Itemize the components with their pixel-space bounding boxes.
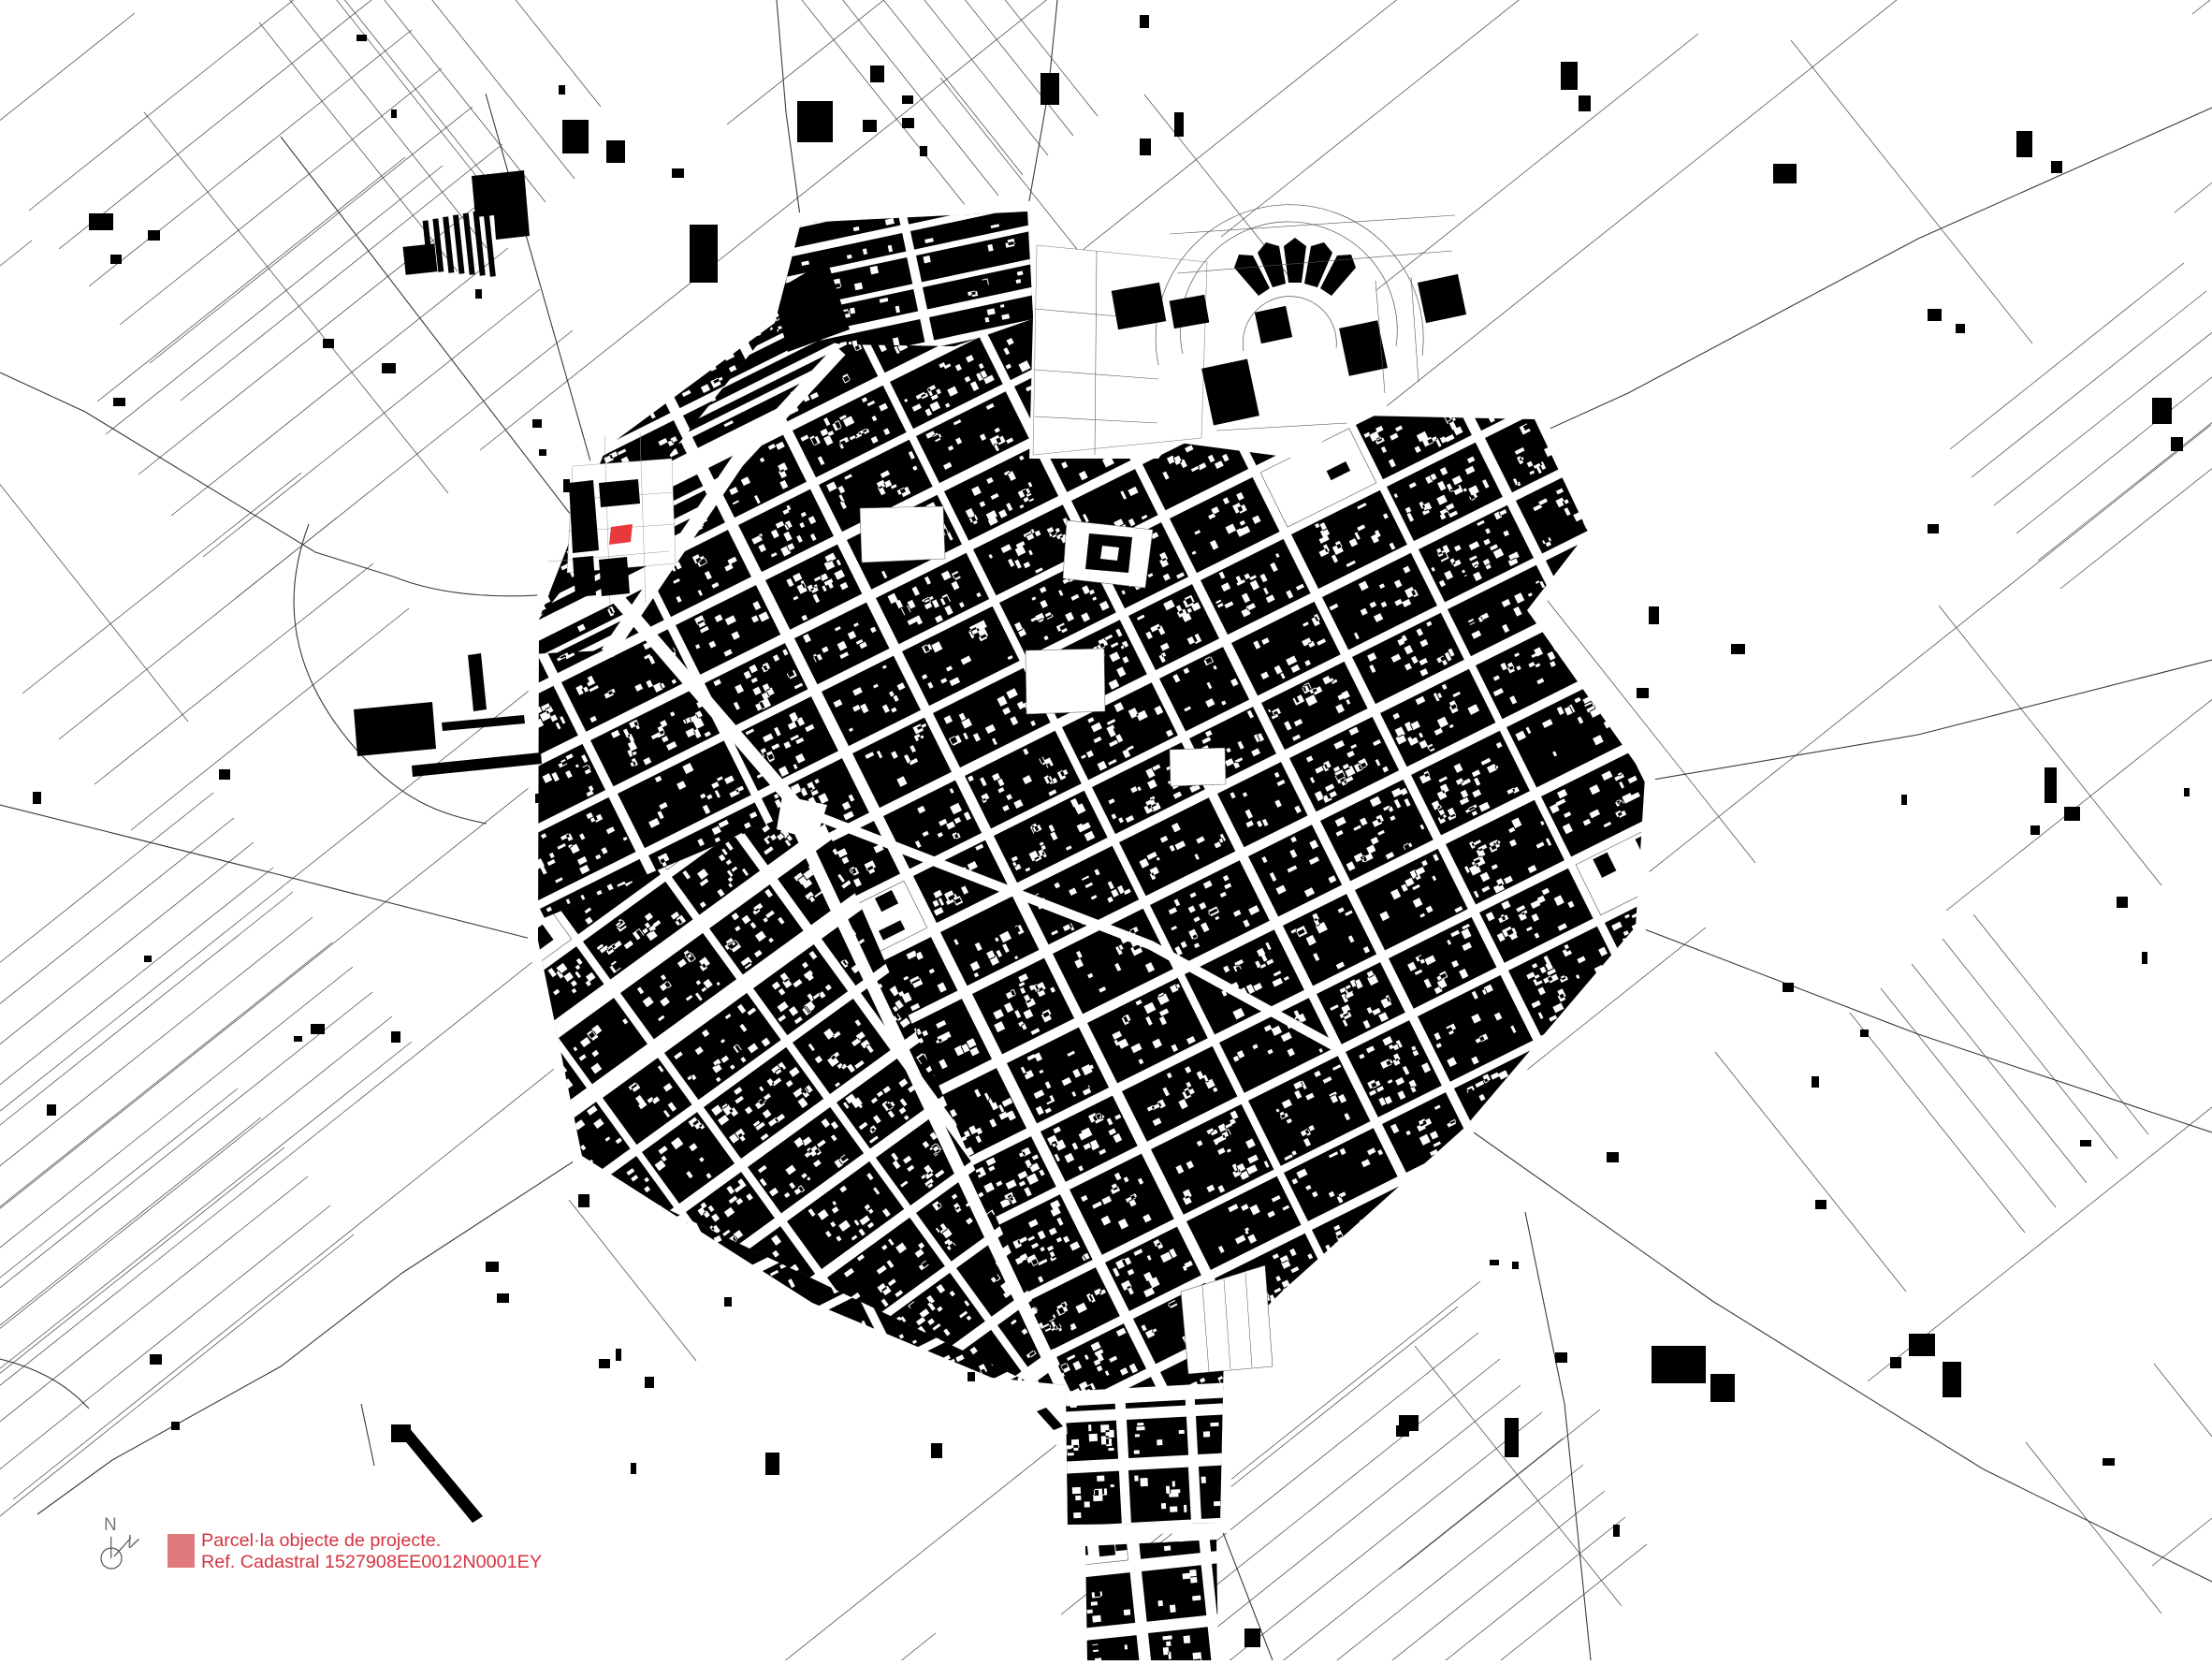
svg-text:Parcel·la objecte de projecte.: Parcel·la objecte de projecte.: [201, 1530, 441, 1551]
svg-text:Ref. Cadastral 1527908EE0012N0: Ref. Cadastral 1527908EE0012N0001EY: [201, 1552, 542, 1572]
svg-text:N: N: [104, 1515, 117, 1535]
